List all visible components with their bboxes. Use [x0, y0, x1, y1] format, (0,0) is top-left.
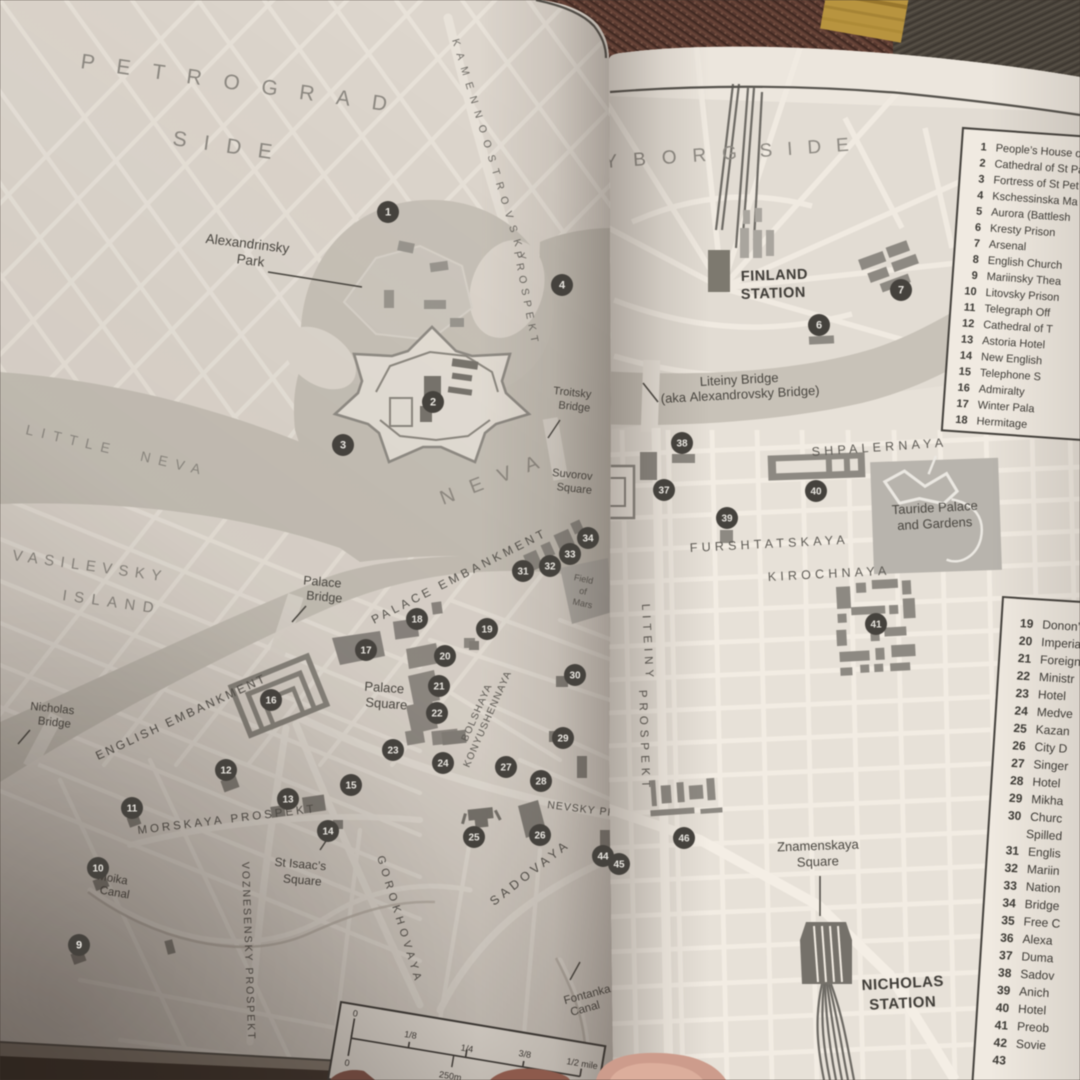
svg-text:22: 22 — [431, 709, 443, 720]
svg-text:15: 15 — [958, 366, 971, 379]
svg-text:17: 17 — [956, 398, 969, 411]
svg-text:31: 31 — [517, 567, 529, 578]
svg-text:15: 15 — [345, 781, 357, 792]
svg-text:2: 2 — [430, 397, 436, 409]
svg-text:12: 12 — [962, 318, 975, 331]
svg-text:14: 14 — [959, 350, 973, 363]
svg-text:Znamenskaya: Znamenskaya — [777, 837, 860, 855]
svg-text:8: 8 — [972, 254, 979, 266]
svg-text:13: 13 — [282, 795, 294, 806]
svg-text:14: 14 — [322, 827, 334, 838]
svg-text:26: 26 — [534, 831, 546, 842]
svg-text:16: 16 — [957, 382, 970, 395]
svg-text:7: 7 — [898, 285, 904, 297]
svg-text:1: 1 — [385, 207, 391, 219]
svg-text:27: 27 — [500, 763, 512, 774]
svg-text:44: 44 — [597, 852, 609, 863]
svg-text:21: 21 — [433, 682, 445, 693]
svg-text:45: 45 — [613, 860, 625, 871]
svg-text:46: 46 — [678, 834, 690, 845]
svg-text:39: 39 — [721, 514, 733, 525]
svg-text:32: 32 — [544, 562, 556, 573]
svg-text:9: 9 — [971, 270, 978, 282]
svg-text:10: 10 — [964, 285, 977, 298]
svg-text:33: 33 — [564, 550, 576, 561]
svg-text:19: 19 — [481, 625, 493, 636]
svg-text:13: 13 — [961, 334, 974, 347]
svg-text:10: 10 — [92, 864, 104, 875]
svg-text:4: 4 — [559, 280, 566, 292]
svg-text:37: 37 — [658, 486, 670, 497]
svg-text:16: 16 — [265, 696, 277, 707]
svg-text:6: 6 — [816, 320, 822, 332]
svg-text:3: 3 — [340, 440, 346, 452]
svg-text:29: 29 — [557, 734, 569, 745]
svg-text:24: 24 — [437, 759, 449, 770]
svg-text:20: 20 — [439, 652, 451, 663]
svg-text:25: 25 — [468, 833, 480, 844]
svg-text:17: 17 — [360, 646, 372, 657]
svg-text:11: 11 — [127, 804, 138, 815]
svg-text:Square: Square — [797, 853, 839, 869]
svg-text:18: 18 — [955, 414, 968, 427]
svg-text:11: 11 — [963, 302, 975, 315]
svg-text:40: 40 — [810, 487, 822, 498]
svg-text:9: 9 — [76, 940, 82, 952]
svg-text:18: 18 — [411, 615, 423, 626]
svg-text:34: 34 — [582, 534, 594, 545]
svg-text:41: 41 — [870, 620, 882, 631]
svg-text:38: 38 — [676, 439, 688, 450]
svg-text:STATION: STATION — [869, 993, 937, 1013]
svg-text:28: 28 — [535, 777, 547, 788]
svg-text:12: 12 — [220, 766, 232, 777]
svg-text:7: 7 — [973, 238, 980, 250]
svg-text:23: 23 — [387, 746, 399, 757]
svg-text:30: 30 — [569, 671, 581, 682]
